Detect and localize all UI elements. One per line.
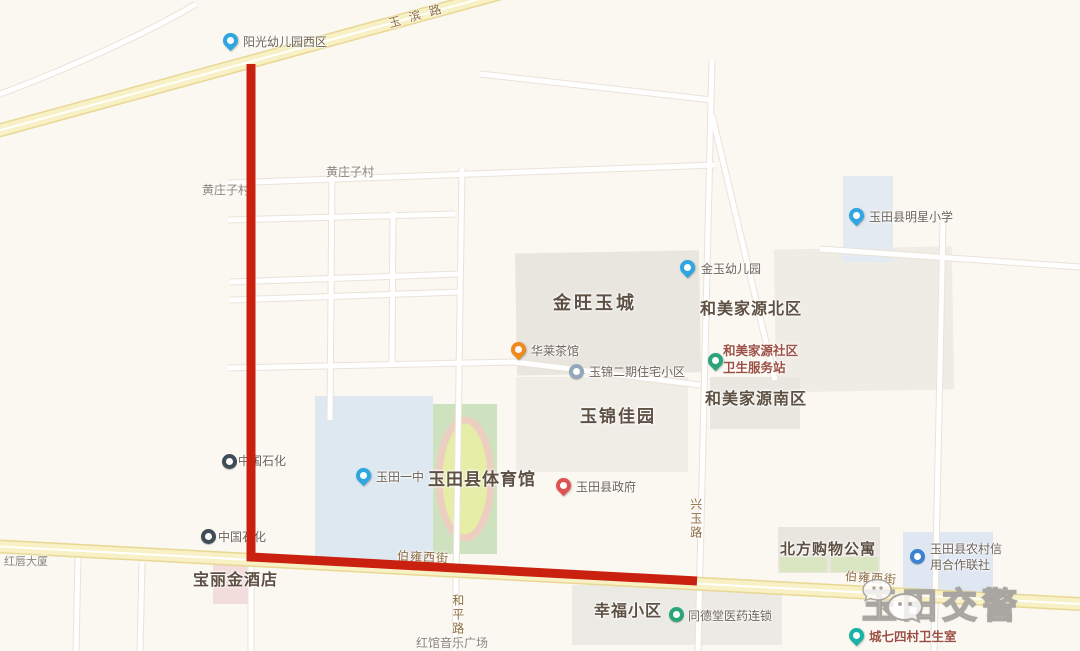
road-label-xingyu[interactable]: 兴玉路 (688, 498, 702, 540)
map-canvas[interactable]: 阳光幼儿园西区 玉滨路 黄庄子村 黄庄子村 金旺玉城 和美家源北区 金玉幼儿园 … (0, 0, 1080, 651)
poi-chengqisi-clinic[interactable]: 城七四村卫生室 (869, 630, 957, 644)
area-huangzhuangzi-west[interactable]: 黄庄子村 (202, 184, 250, 198)
location-pin-icon[interactable] (222, 33, 239, 50)
poi-yujin-phase2[interactable]: 玉锦二期住宅小区 (589, 366, 685, 380)
area-hongguan-plaza[interactable]: 红馆音乐广场 (416, 637, 488, 651)
clinic-pin-icon[interactable] (707, 353, 724, 370)
poi-sinopec-north[interactable]: 中国石化 (238, 455, 286, 469)
area-huangzhuangzi[interactable]: 黄庄子村 (326, 166, 374, 180)
poi-yutian-no1-middle[interactable]: 玉田一中 (376, 471, 424, 485)
road-label-boyong-right[interactable]: 伯雍西街 (845, 570, 898, 587)
area-jinwang-yucheng[interactable]: 金旺玉城 (553, 293, 637, 314)
poi-county-government[interactable]: 玉田县政府 (576, 481, 636, 495)
poi-rural-credit-line2[interactable]: 用合作联社 (930, 559, 990, 573)
area-xingfu-community[interactable]: 幸福小区 (594, 603, 662, 621)
clinic-pin-icon[interactable] (848, 628, 865, 645)
poi-tongdetang-pharmacy[interactable]: 同德堂医药连锁 (688, 610, 772, 624)
gas-station-icon[interactable] (222, 454, 237, 469)
poi-jinyu-kindergarten[interactable]: 金玉幼儿园 (701, 263, 761, 277)
poi-hemei-clinic-line2[interactable]: 卫生服务站 (723, 361, 786, 375)
road-label-yubin[interactable]: 玉滨路 (387, 1, 451, 32)
poi-rural-credit-line1[interactable]: 玉田县农村信 (930, 543, 1002, 557)
poi-yangguang-kindergarten-west[interactable]: 阳光幼儿园西区 (243, 36, 327, 50)
residence-pin-icon[interactable] (569, 364, 584, 379)
road-label-boyong-left[interactable]: 伯雍西街 (397, 550, 450, 567)
teahouse-pin-icon[interactable] (510, 342, 527, 359)
poi-sinopec-south[interactable]: 中国石化 (218, 531, 266, 545)
area-hemei-south[interactable]: 和美家源南区 (705, 391, 807, 409)
area-yutian-gym[interactable]: 玉田县体育馆 (428, 470, 536, 490)
gas-station-icon[interactable] (201, 529, 216, 544)
road-label-heping[interactable]: 和平路 (450, 594, 464, 636)
government-pin-icon[interactable] (555, 478, 572, 495)
poi-hemei-clinic-line1[interactable]: 和美家源社区 (723, 344, 798, 358)
bank-pin-icon[interactable] (910, 549, 925, 564)
area-yujin-jiayuan[interactable]: 玉锦佳园 (580, 407, 656, 427)
area-hongchun-building[interactable]: 红唇大厦 (4, 556, 48, 569)
poi-mingxing-primary[interactable]: 玉田县明星小学 (869, 211, 953, 225)
area-beifang-apartment[interactable]: 北方购物公寓 (780, 541, 876, 558)
pharmacy-pin-icon[interactable] (669, 607, 684, 622)
location-pin-icon[interactable] (679, 260, 696, 277)
area-hemei-north[interactable]: 和美家源北区 (700, 301, 802, 319)
school-pin-icon[interactable] (848, 208, 865, 225)
area-baolijin-hotel[interactable]: 宝丽金酒店 (193, 572, 278, 590)
school-pin-icon[interactable] (355, 468, 372, 485)
poi-hualai-teahouse[interactable]: 华莱茶馆 (531, 345, 579, 359)
map-labels-layer: 阳光幼儿园西区 玉滨路 黄庄子村 黄庄子村 金旺玉城 和美家源北区 金玉幼儿园 … (0, 0, 1080, 651)
